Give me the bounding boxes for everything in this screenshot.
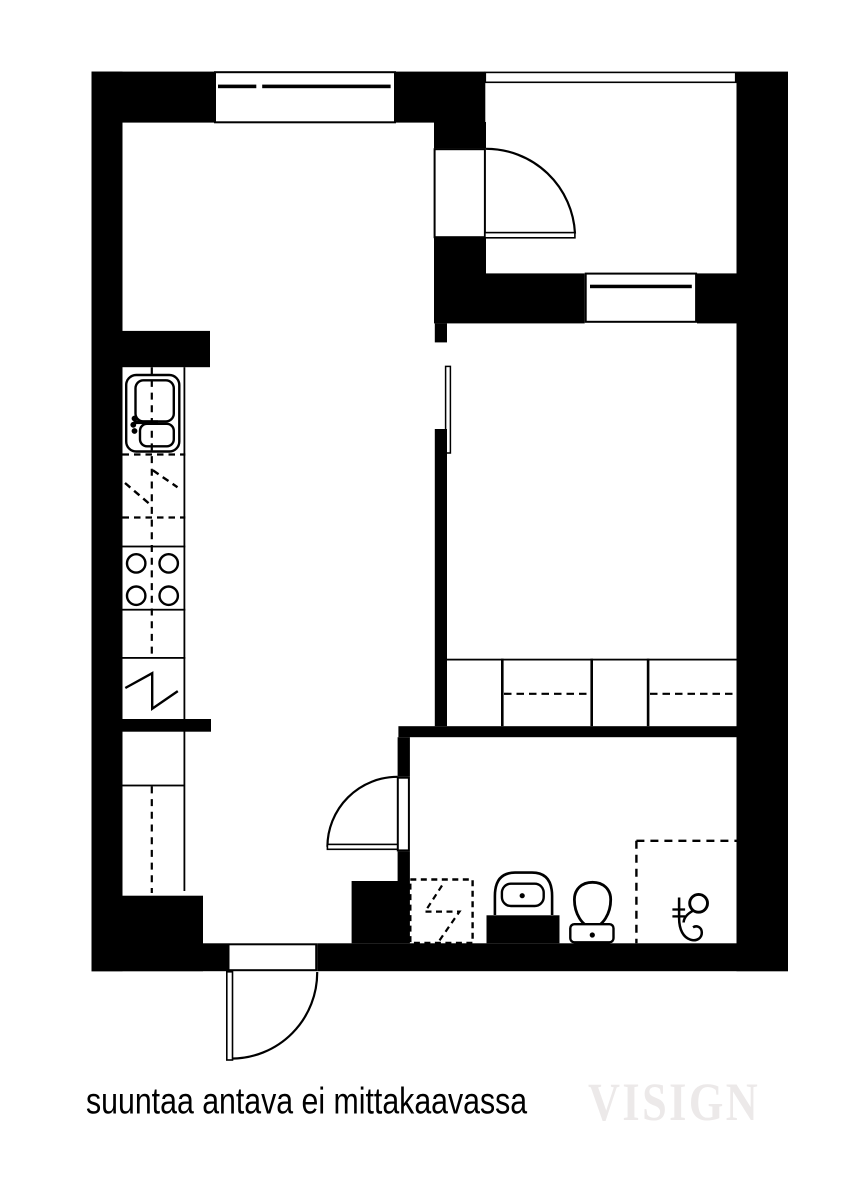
svg-text:VISIGN: VISIGN [588, 1072, 760, 1132]
svg-text:suuntaa antava ei mittakaavass: suuntaa antava ei mittakaavassa [86, 1080, 527, 1122]
